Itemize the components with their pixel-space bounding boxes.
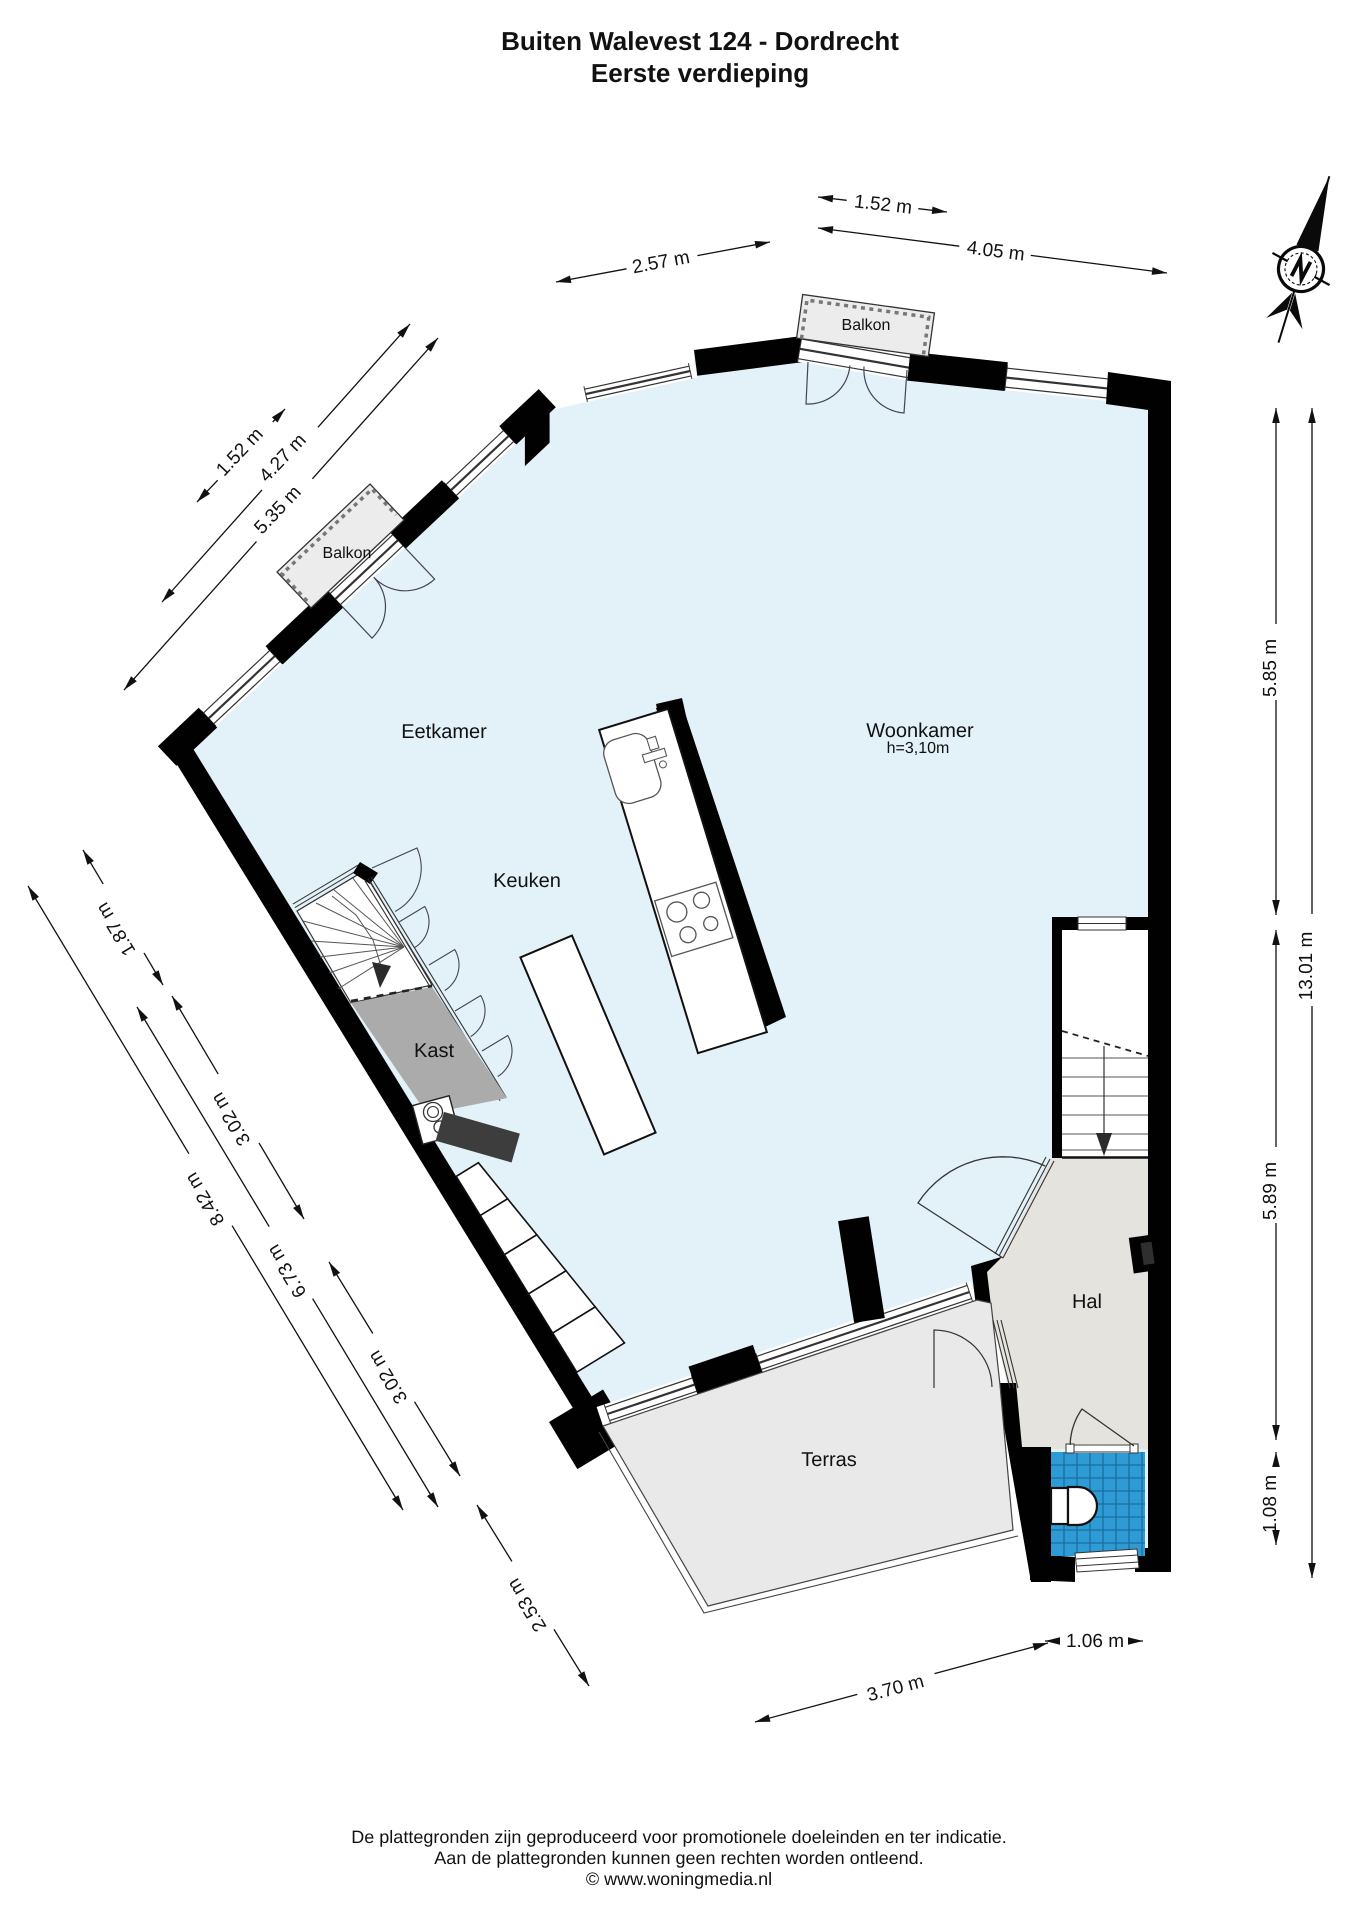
svg-text:Buiten Walevest 124 - Dordrech: Buiten Walevest 124 - Dordrecht <box>501 26 899 56</box>
svg-text:2.57 m: 2.57 m <box>631 247 692 278</box>
svg-text:5.85 m: 5.85 m <box>1260 639 1281 697</box>
svg-text:1.52 m: 1.52 m <box>853 191 913 218</box>
svg-text:5.89 m: 5.89 m <box>1260 1162 1281 1220</box>
svg-text:5.35 m: 5.35 m <box>250 482 305 539</box>
svg-text:6.73 m: 6.73 m <box>263 1241 311 1302</box>
svg-text:Balkon: Balkon <box>323 545 372 562</box>
svg-text:Keuken: Keuken <box>493 870 561 892</box>
svg-text:h=3,10m: h=3,10m <box>887 740 950 757</box>
svg-text:Terras: Terras <box>801 1449 857 1471</box>
svg-text:© www.woningmedia.nl: © www.woningmedia.nl <box>586 1869 772 1889</box>
svg-text:Eetkamer: Eetkamer <box>401 721 487 743</box>
svg-text:De plattegronden zijn geproduc: De plattegronden zijn geproduceerd voor … <box>351 1827 1006 1847</box>
svg-text:Balkon: Balkon <box>842 317 891 334</box>
svg-text:Kast: Kast <box>414 1040 454 1062</box>
svg-text:Hal: Hal <box>1072 1291 1102 1313</box>
svg-text:13.01 m: 13.01 m <box>1296 932 1317 1001</box>
svg-text:Eerste verdieping: Eerste verdieping <box>591 58 809 88</box>
svg-text:3.70 m: 3.70 m <box>865 1671 927 1706</box>
svg-text:Woonkamer: Woonkamer <box>866 720 974 742</box>
svg-text:1.87 m: 1.87 m <box>92 899 140 960</box>
svg-text:3.02 m: 3.02 m <box>207 1089 255 1150</box>
svg-text:1.06 m: 1.06 m <box>1066 1631 1124 1652</box>
svg-text:4.05 m: 4.05 m <box>966 237 1026 265</box>
svg-text:3.02 m: 3.02 m <box>364 1347 412 1408</box>
svg-text:1.08 m: 1.08 m <box>1260 1475 1281 1533</box>
svg-text:2.53 m: 2.53 m <box>503 1575 551 1636</box>
svg-text:8.42 m: 8.42 m <box>181 1169 229 1230</box>
svg-text:Aan de plattegronden kunnen ge: Aan de plattegronden kunnen geen rechten… <box>434 1848 923 1868</box>
